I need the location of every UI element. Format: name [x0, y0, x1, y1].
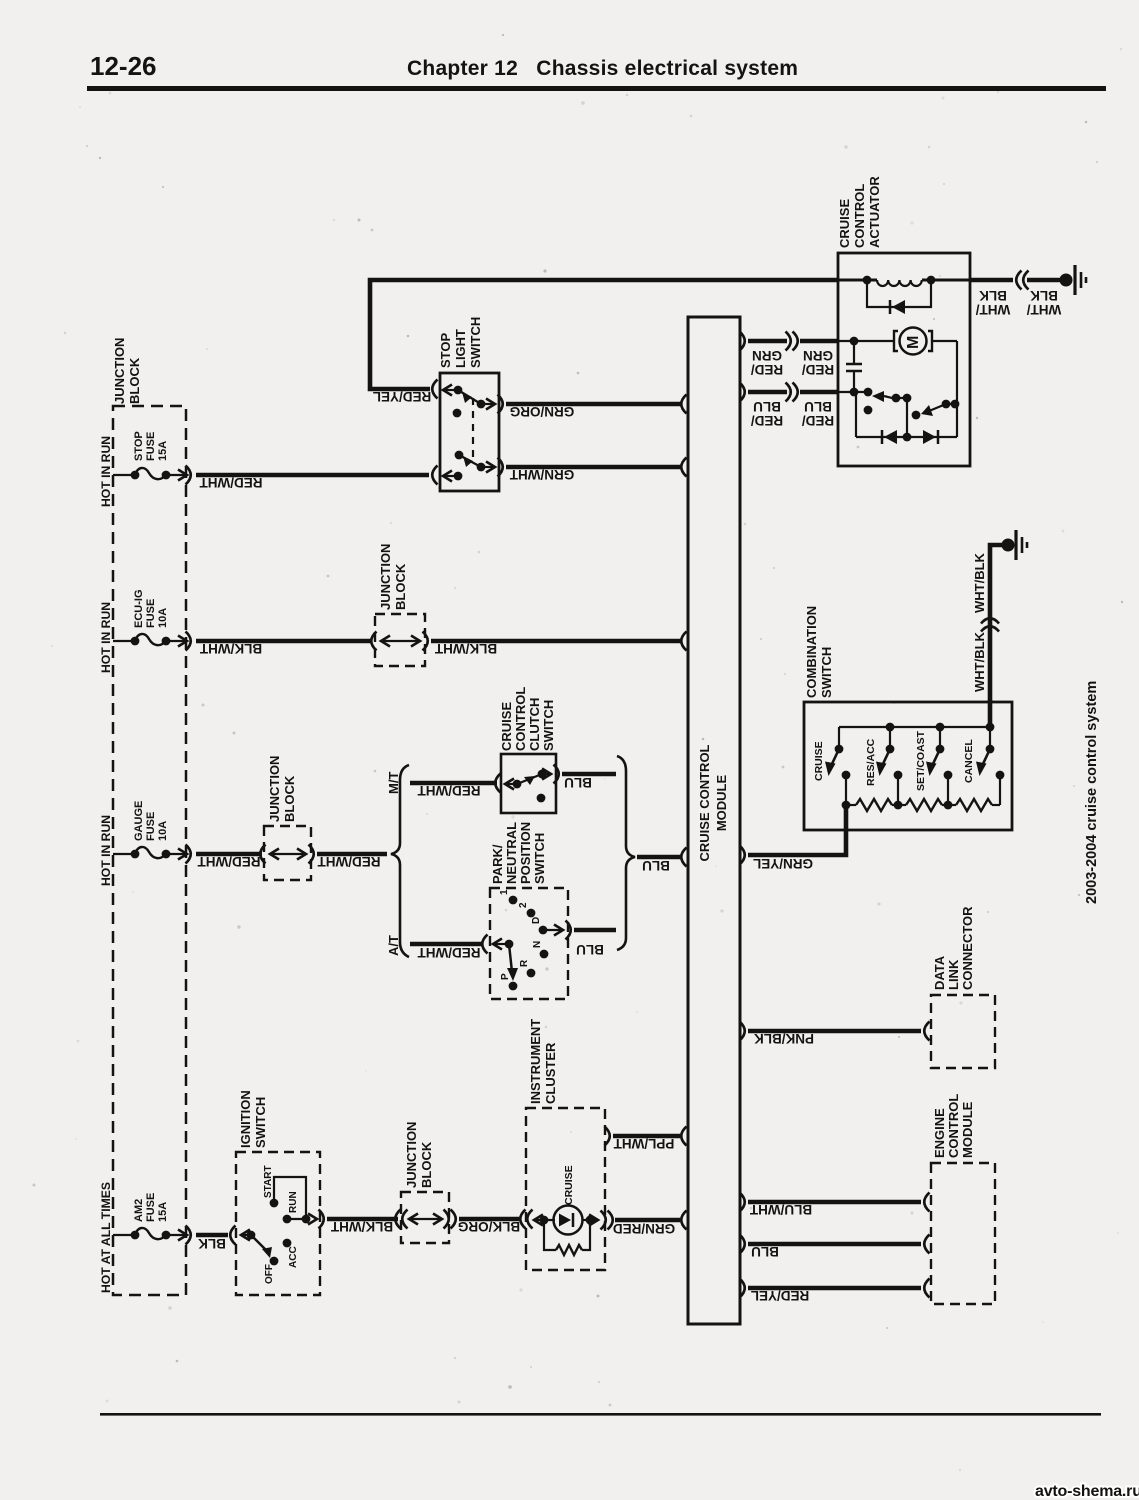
svg-text:D: D: [531, 917, 542, 924]
svg-text:AM2: AM2: [133, 1199, 145, 1222]
svg-text:CONTROL: CONTROL: [946, 1094, 961, 1158]
svg-text:JUNCTION: JUNCTION: [378, 544, 393, 610]
svg-text:JUNCTION: JUNCTION: [267, 756, 282, 822]
svg-text:MODULE: MODULE: [714, 775, 729, 832]
svg-text:BLK: BLK: [198, 1236, 226, 1251]
svg-text:15A: 15A: [157, 1202, 169, 1222]
svg-text:OFF: OFF: [264, 1264, 275, 1284]
svg-text:10A: 10A: [157, 821, 169, 841]
svg-text:BLU: BLU: [751, 1244, 779, 1259]
svg-text:RED/WHT: RED/WHT: [317, 854, 381, 869]
svg-text:SWITCH: SWITCH: [819, 647, 834, 698]
svg-text:M/T: M/T: [386, 772, 401, 794]
svg-text:CANCEL: CANCEL: [963, 739, 975, 783]
svg-text:M: M: [905, 336, 922, 349]
svg-text:WHT/: WHT/: [1027, 302, 1062, 317]
svg-text:RUN: RUN: [288, 1191, 299, 1213]
svg-text:R: R: [519, 959, 530, 967]
svg-text:CRUISE: CRUISE: [813, 741, 825, 781]
svg-text:1: 1: [499, 889, 510, 895]
svg-text:SWITCH: SWITCH: [468, 317, 483, 368]
svg-text:ACC: ACC: [288, 1246, 299, 1268]
svg-text:HOT IN RUN: HOT IN RUN: [99, 815, 113, 886]
svg-text:BLU: BLU: [753, 399, 781, 414]
svg-text:FUSE: FUSE: [145, 599, 157, 628]
svg-text:ACTUATOR: ACTUATOR: [867, 176, 882, 248]
svg-text:RED/: RED/: [802, 362, 835, 377]
svg-text:STOP: STOP: [438, 333, 453, 368]
svg-text:15A: 15A: [157, 441, 169, 461]
svg-text:A/T: A/T: [386, 935, 401, 956]
svg-text:GRN: GRN: [803, 348, 833, 363]
svg-text:FUSE: FUSE: [145, 432, 157, 461]
svg-text:LIGHT: LIGHT: [453, 329, 468, 368]
svg-text:P: P: [500, 973, 511, 980]
svg-text:GRN/WHT: GRN/WHT: [509, 467, 574, 482]
svg-text:WHT/BLK: WHT/BLK: [972, 631, 987, 692]
svg-text:GRN/RED: GRN/RED: [613, 1221, 676, 1236]
svg-text:RED/WHT: RED/WHT: [197, 854, 261, 869]
svg-text:START: START: [263, 1165, 274, 1198]
svg-text:IGNITION: IGNITION: [238, 1090, 253, 1148]
svg-text:NEUTRAL: NEUTRAL: [504, 822, 519, 884]
svg-text:RED/YEL: RED/YEL: [751, 1288, 810, 1303]
svg-text:POSITION: POSITION: [518, 822, 533, 884]
svg-text:BLU: BLU: [564, 775, 592, 790]
svg-text:PPL/WHT: PPL/WHT: [613, 1136, 674, 1151]
svg-text:BLK: BLK: [979, 288, 1007, 303]
svg-text:RED/: RED/: [751, 413, 784, 428]
svg-text:GRN/ORG: GRN/ORG: [510, 404, 575, 419]
svg-text:BLK: BLK: [1030, 288, 1058, 303]
svg-text:BLK/WHT: BLK/WHT: [330, 1219, 393, 1234]
svg-text:SET/COAST: SET/COAST: [915, 730, 927, 791]
svg-text:BLK/ORG: BLK/ORG: [458, 1219, 520, 1234]
svg-text:RED/WHT: RED/WHT: [417, 945, 481, 960]
svg-text:2003-2004 cruise control syste: 2003-2004 cruise control system: [1084, 681, 1100, 904]
svg-text:WHT/BLK: WHT/BLK: [972, 552, 987, 613]
svg-text:GRN: GRN: [752, 348, 782, 363]
svg-text:12-26: 12-26: [90, 51, 157, 81]
svg-text:BLK/WHT: BLK/WHT: [199, 641, 262, 656]
svg-text:CLUSTER: CLUSTER: [543, 1042, 558, 1104]
svg-text:CLUTCH: CLUTCH: [527, 698, 542, 751]
svg-text:RED/YEL: RED/YEL: [373, 389, 432, 404]
svg-text:Chapter 12 Chassis electrica: Chapter 12 Chassis electrical system: [407, 57, 798, 80]
svg-text:MODULE: MODULE: [960, 1101, 975, 1158]
svg-text:CONTROL: CONTROL: [852, 184, 867, 248]
svg-text:BLOCK: BLOCK: [282, 775, 297, 822]
svg-text:ECU-IG: ECU-IG: [133, 590, 145, 629]
svg-text:CONNECTOR: CONNECTOR: [960, 906, 975, 990]
svg-text:GAUGE: GAUGE: [133, 801, 145, 841]
svg-text:INSTRUMENT: INSTRUMENT: [528, 1019, 543, 1104]
svg-text:JUNCTION: JUNCTION: [112, 338, 127, 404]
svg-text:JUNCTION: JUNCTION: [404, 1122, 419, 1188]
svg-text:SWITCH: SWITCH: [253, 1097, 268, 1148]
svg-text:RES/ACC: RES/ACC: [865, 738, 877, 786]
svg-text:BLU/WHT: BLU/WHT: [749, 1202, 812, 1217]
svg-text:COMBINATION: COMBINATION: [804, 606, 819, 698]
svg-text:BLU: BLU: [576, 942, 604, 957]
svg-text:BLOCK: BLOCK: [393, 563, 408, 610]
svg-text:LINK: LINK: [946, 959, 961, 990]
svg-text:CRUISE CONTROL: CRUISE CONTROL: [697, 744, 712, 861]
svg-text:10A: 10A: [157, 608, 169, 628]
svg-text:WHT/: WHT/: [976, 302, 1011, 317]
svg-text:CRUISE: CRUISE: [563, 1165, 575, 1205]
svg-text:avto-shema.ru: avto-shema.ru: [1035, 1483, 1139, 1500]
svg-text:GRN/YEL: GRN/YEL: [753, 856, 813, 871]
svg-text:2: 2: [518, 902, 529, 908]
svg-text:RED/: RED/: [751, 362, 784, 377]
svg-text:N: N: [532, 941, 543, 948]
svg-text:SWITCH: SWITCH: [532, 833, 547, 884]
svg-text:FUSE: FUSE: [145, 812, 157, 841]
svg-text:CRUISE: CRUISE: [837, 199, 852, 248]
svg-text:RED/WHT: RED/WHT: [417, 783, 481, 798]
svg-text:BLOCK: BLOCK: [127, 357, 142, 404]
svg-text:PARK/: PARK/: [490, 844, 505, 884]
svg-text:HOT AT ALL TIMES: HOT AT ALL TIMES: [99, 1182, 113, 1293]
svg-text:BLU: BLU: [804, 399, 832, 414]
svg-text:SWITCH: SWITCH: [541, 700, 556, 751]
svg-text:DATA: DATA: [932, 955, 947, 990]
svg-text:CONTROL: CONTROL: [513, 687, 528, 751]
svg-text:PNK/BLK: PNK/BLK: [754, 1031, 814, 1046]
svg-text:RED/: RED/: [802, 413, 835, 428]
svg-text:CRUISE: CRUISE: [499, 702, 514, 751]
svg-text:BLU: BLU: [642, 858, 670, 873]
svg-text:BLOCK: BLOCK: [419, 1141, 434, 1188]
svg-text:STOP: STOP: [133, 431, 145, 461]
svg-text:RED/WHT: RED/WHT: [199, 475, 263, 490]
svg-text:FUSE: FUSE: [145, 1193, 157, 1222]
svg-text:ENGINE: ENGINE: [932, 1108, 947, 1158]
svg-text:HOT IN RUN: HOT IN RUN: [99, 602, 113, 673]
svg-text:BLK/WHT: BLK/WHT: [434, 641, 497, 656]
svg-text:HOT IN RUN: HOT IN RUN: [99, 436, 113, 507]
